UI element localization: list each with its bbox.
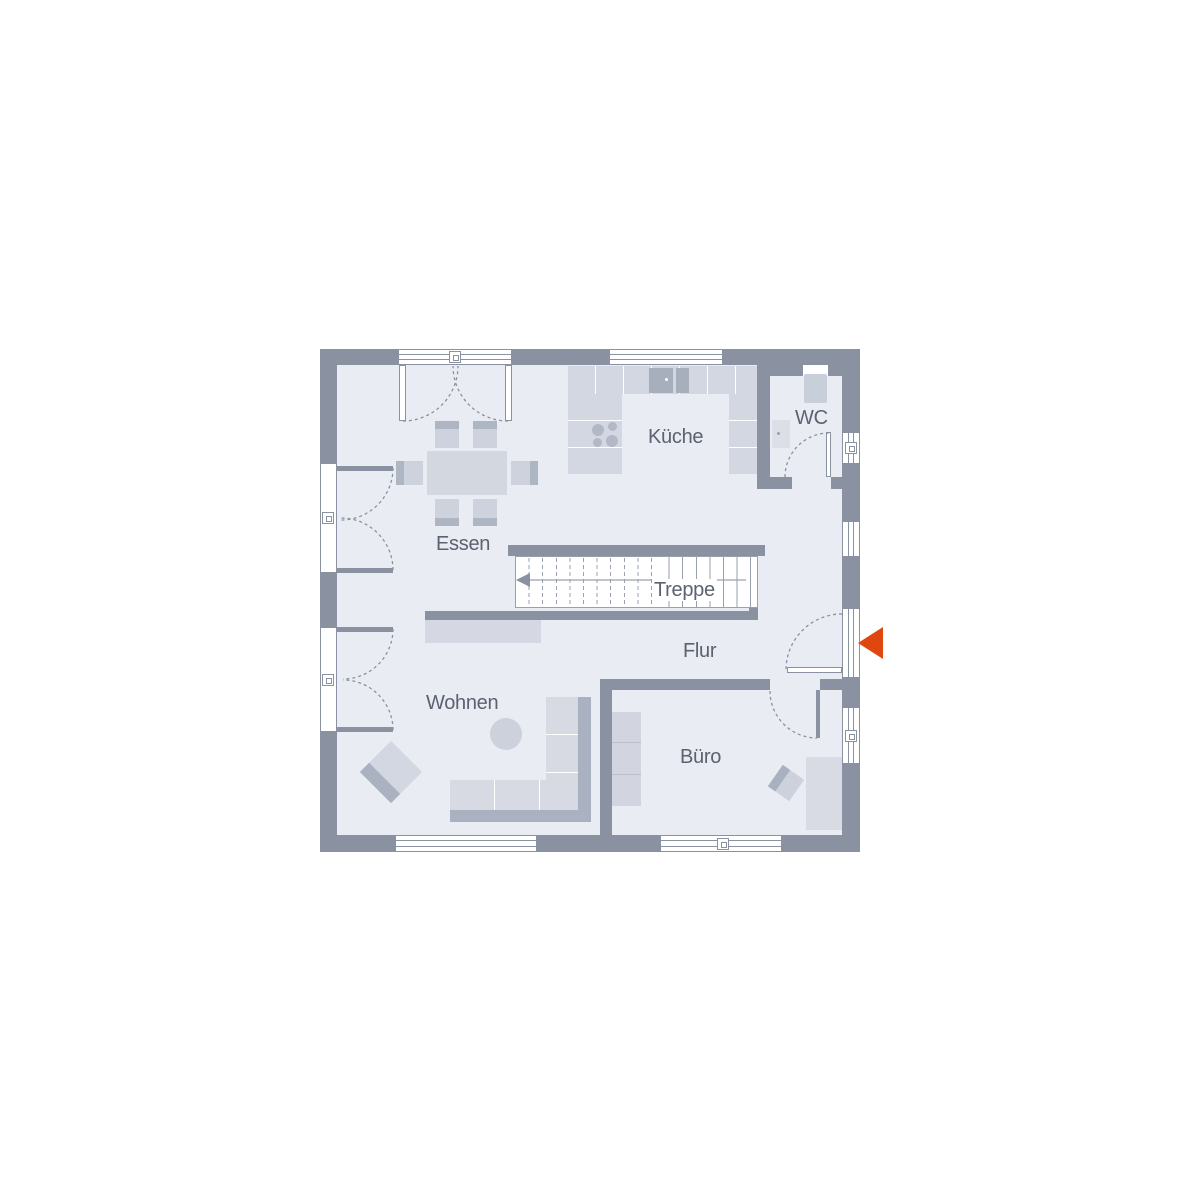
floor-plan-canvas: Essen Küche WC Treppe Flur Wohnen Büro [0,0,1200,1200]
room-label-treppe: Treppe [652,579,717,601]
room-label-kueche: Küche [648,426,703,448]
sofa-seats-vertical [546,697,578,810]
sofa-backrest-bottom [450,810,578,822]
dining-chair [435,421,459,448]
wohnen-door-leaf-bottom [337,727,393,732]
office-shelf [612,712,641,806]
wall-wc-bottom-stub [831,477,842,489]
room-label-essen: Essen [436,533,490,555]
wall-buero-left [600,679,612,835]
wall-wc-bottom [770,477,792,489]
wohnen-door-leaf-top [337,627,393,632]
essen-door-leaf-top [337,466,393,471]
wohnen-french-door-symbol [322,674,334,686]
dining-chair [396,461,423,485]
dining-chair [473,421,497,448]
room-label-wc: WC [795,407,828,429]
coffee-table [490,718,522,750]
dining-chair [511,461,538,485]
essen-french-door-symbol [322,512,334,524]
terrace-door-leaf-right [505,365,512,421]
terrace-door-leaf-left [399,365,406,421]
sofa-backrest-right [578,697,591,822]
sofa-seats-horizontal [450,780,546,810]
staircase [515,556,758,608]
terrace-door-symbol [449,351,461,363]
kitchen-sink [649,368,673,393]
wall-buero-top [600,679,770,690]
toilet [804,374,827,403]
buero-window-bottom-symbol [717,838,729,850]
essen-door-leaf-bottom [337,568,393,573]
wall-below-stairs [425,611,758,620]
exterior-wall-right [842,349,860,852]
buero-door-leaf [816,690,820,738]
sideboard [425,620,541,643]
kitchen-window [609,349,723,365]
wall-wc-left [757,365,770,489]
stair-treads-dashed [516,557,656,607]
wall-buero-top-stub [820,679,842,690]
kitchen-sink-half [676,368,689,393]
kitchen-counter-right [729,394,757,474]
wc-sink [772,420,790,448]
desk [806,757,842,830]
room-label-buero: Büro [680,746,721,768]
buero-window-right-symbol [845,730,857,742]
flur-window [842,521,860,557]
wc-window-symbol [845,442,857,454]
room-label-wohnen: Wohnen [426,692,498,714]
room-label-flur: Flur [683,640,716,662]
wall-above-stairs [508,545,765,556]
dining-chair [435,499,459,526]
wc-door-leaf [826,432,831,477]
dining-table [427,451,507,495]
dining-chair [473,499,497,526]
entrance-door-opening [842,608,860,678]
kitchen-cooktop [592,422,620,448]
entrance-arrow-icon [858,627,883,659]
exterior-wall-left [320,349,337,852]
wohnen-window [395,835,537,852]
entrance-door-leaf [787,667,842,673]
